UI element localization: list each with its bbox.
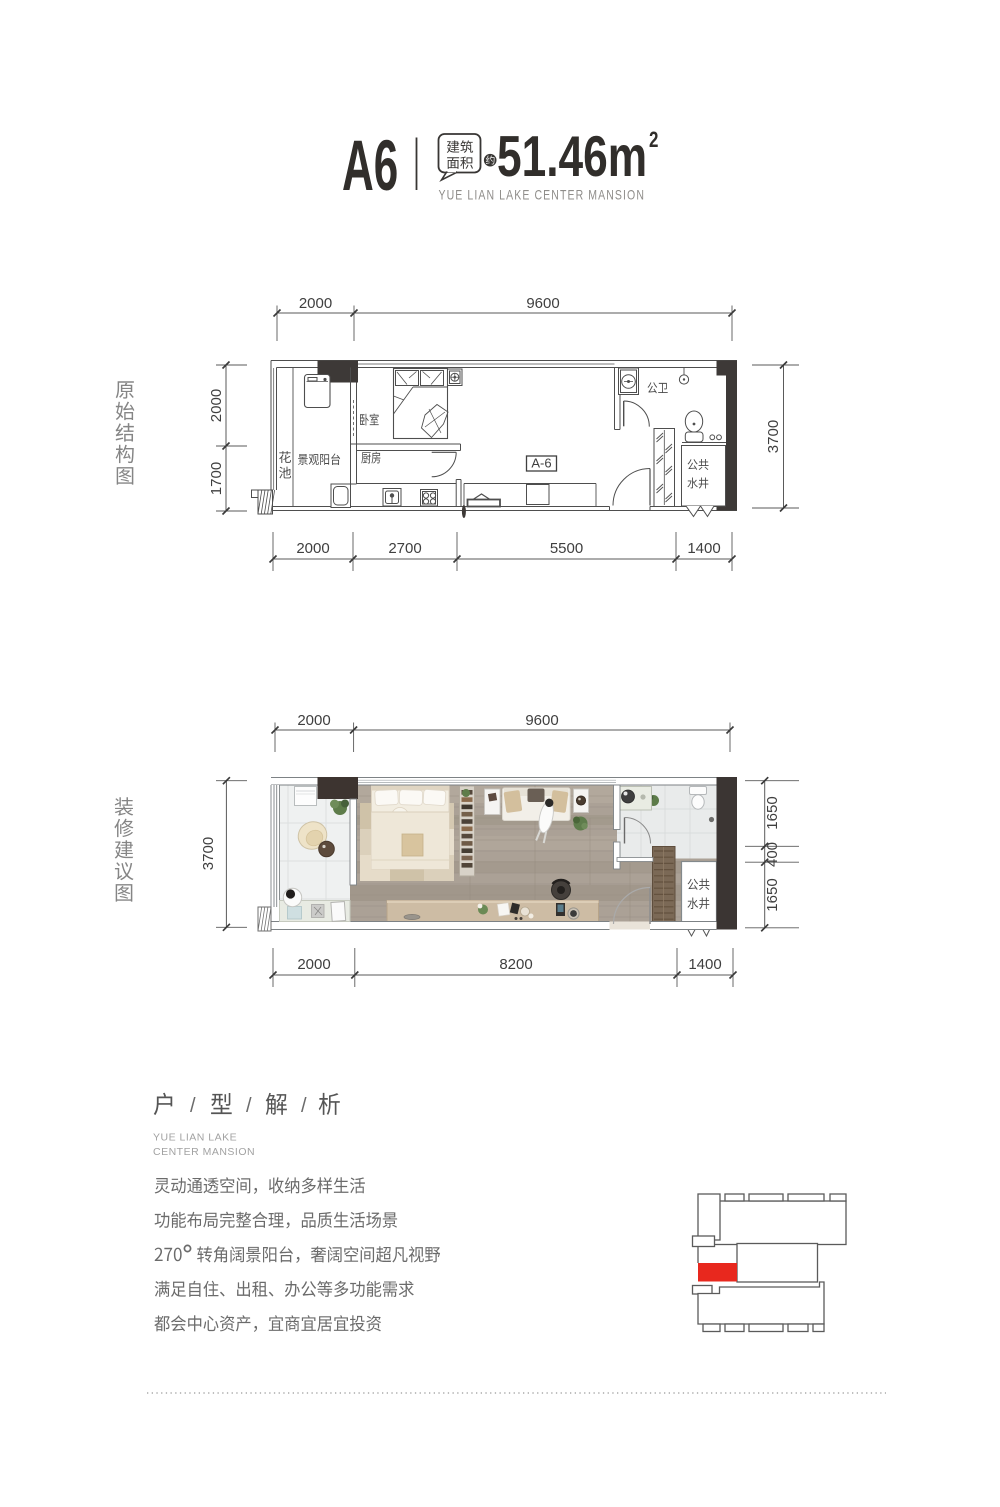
- svg-text:1650: 1650: [764, 796, 781, 829]
- svg-text:YUE LIAN LAKE: YUE LIAN LAKE: [153, 1132, 237, 1144]
- svg-text:2000: 2000: [297, 956, 330, 973]
- svg-text:2000: 2000: [296, 540, 329, 557]
- svg-text:2700: 2700: [388, 540, 421, 557]
- svg-text:3700: 3700: [200, 837, 217, 870]
- svg-text:YUE LIAN LAKE CENTER MANSION: YUE LIAN LAKE CENTER MANSION: [439, 187, 646, 203]
- svg-text:1700: 1700: [208, 462, 225, 495]
- svg-text:CENTER MANSION: CENTER MANSION: [153, 1146, 255, 1158]
- svg-text:/: /: [190, 1095, 196, 1117]
- svg-text:A-6: A-6: [531, 456, 551, 471]
- svg-text:9600: 9600: [525, 712, 558, 729]
- svg-text:51.46m: 51.46m: [497, 124, 647, 188]
- svg-text:9600: 9600: [526, 295, 559, 312]
- svg-text:2000: 2000: [299, 295, 332, 312]
- svg-text:1650: 1650: [764, 878, 781, 911]
- svg-text:1400: 1400: [687, 540, 720, 557]
- svg-text:2: 2: [649, 128, 658, 153]
- svg-text:400: 400: [764, 842, 781, 867]
- svg-text:5500: 5500: [550, 540, 583, 557]
- svg-text:/: /: [246, 1095, 252, 1117]
- svg-text:/: /: [301, 1095, 307, 1117]
- svg-text:1400: 1400: [688, 956, 721, 973]
- svg-text:8200: 8200: [499, 956, 532, 973]
- svg-text:3700: 3700: [765, 420, 782, 453]
- svg-text:2000: 2000: [297, 712, 330, 729]
- svg-text:A6: A6: [342, 126, 398, 205]
- svg-text:2000: 2000: [208, 389, 225, 422]
